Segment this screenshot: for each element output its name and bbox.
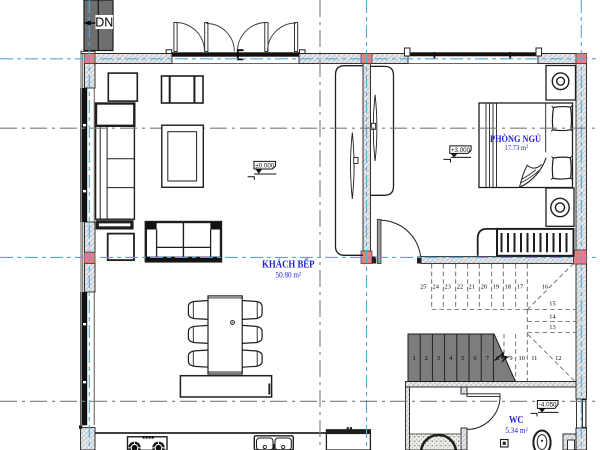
svg-text:2: 2 [425, 355, 428, 362]
svg-text:20: 20 [481, 284, 487, 291]
svg-text:15: 15 [549, 301, 555, 308]
svg-text:22: 22 [457, 284, 463, 291]
svg-text:10: 10 [519, 355, 525, 362]
svg-text:17.73 m²: 17.73 m² [505, 143, 529, 152]
svg-text:50.80 m²: 50.80 m² [276, 271, 302, 280]
svg-text:23: 23 [445, 284, 451, 291]
svg-text:6: 6 [473, 355, 476, 362]
svg-text:-4.050: -4.050 [539, 402, 557, 409]
svg-text:3: 3 [437, 355, 440, 362]
svg-text:+3.000: +3.000 [451, 147, 471, 154]
svg-text:KHÁCH BẾP: KHÁCH BẾP [262, 258, 315, 271]
svg-text:17: 17 [517, 284, 524, 291]
svg-text:9: 9 [509, 355, 512, 362]
svg-text:13: 13 [549, 324, 555, 331]
svg-text:25: 25 [420, 284, 426, 291]
svg-text:8: 8 [496, 355, 499, 362]
svg-text:5: 5 [461, 355, 464, 362]
svg-text:19: 19 [493, 284, 499, 291]
svg-text:±0.000: ±0.000 [255, 162, 274, 169]
svg-text:18: 18 [505, 284, 511, 291]
svg-text:24: 24 [433, 284, 440, 291]
svg-text:21: 21 [469, 284, 475, 291]
svg-text:DN: DN [95, 16, 113, 30]
svg-text:1: 1 [412, 355, 415, 362]
svg-text:WC: WC [509, 415, 524, 426]
svg-text:12: 12 [555, 355, 561, 362]
svg-text:5.34 m²: 5.34 m² [505, 426, 528, 435]
svg-text:14: 14 [549, 314, 556, 321]
svg-text:11: 11 [531, 355, 537, 362]
svg-text:16: 16 [542, 284, 548, 291]
